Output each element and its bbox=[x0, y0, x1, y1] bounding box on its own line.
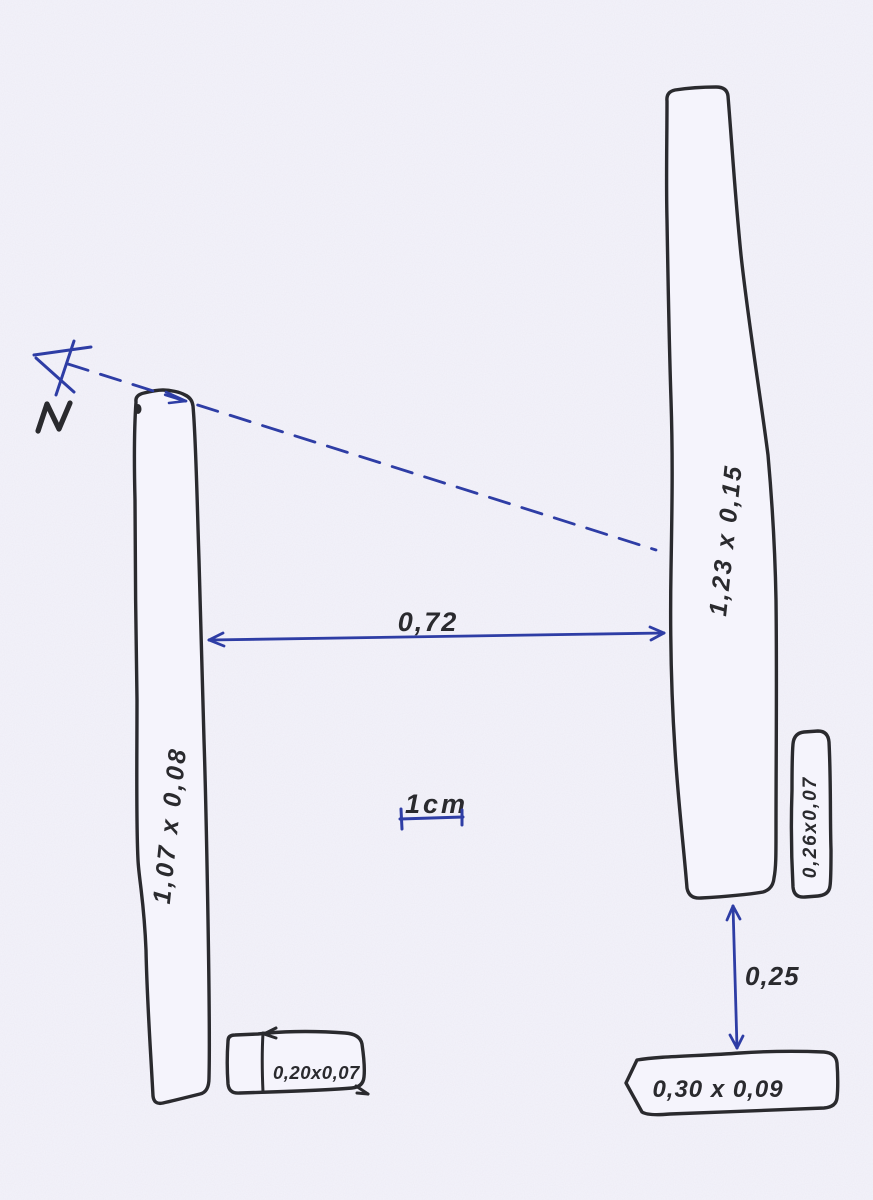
svg-text:0,25: 0,25 bbox=[745, 961, 800, 991]
svg-text:0,26x0,07: 0,26x0,07 bbox=[800, 776, 821, 879]
svg-text:0,30 x 0,09: 0,30 x 0,09 bbox=[652, 1076, 783, 1103]
svg-text:0,20x0,07: 0,20x0,07 bbox=[273, 1062, 361, 1083]
svg-text:0,72: 0,72 bbox=[398, 607, 459, 637]
svg-text:1cm: 1cm bbox=[405, 789, 468, 819]
